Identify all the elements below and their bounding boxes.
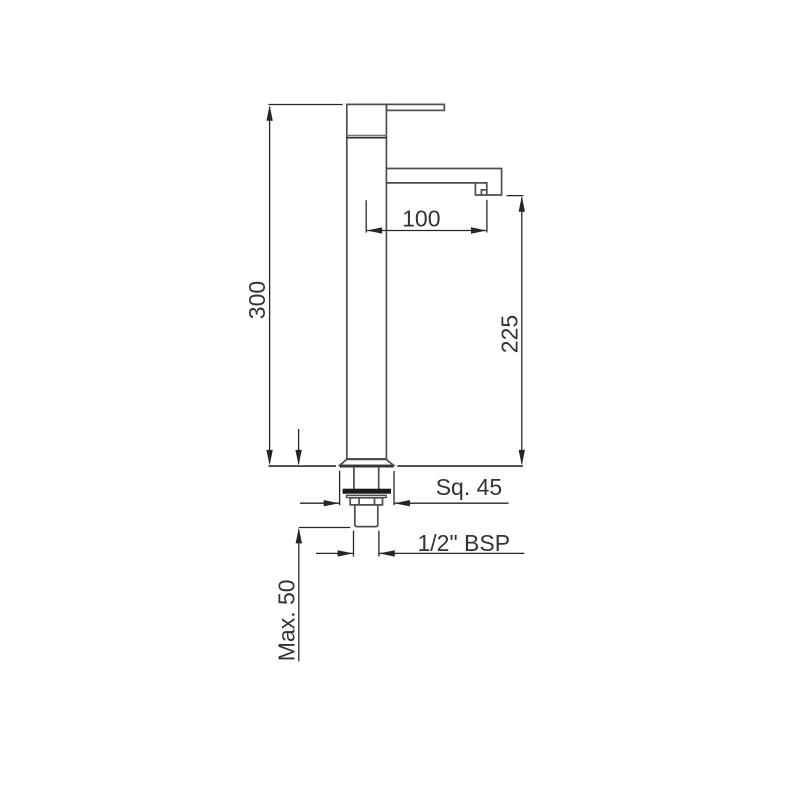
svg-text:225: 225 bbox=[497, 315, 523, 353]
svg-text:100: 100 bbox=[402, 206, 440, 232]
svg-text:Max. 50: Max. 50 bbox=[274, 579, 300, 661]
svg-text:1/2" BSP: 1/2" BSP bbox=[418, 530, 511, 556]
svg-text:Sq. 45: Sq. 45 bbox=[436, 474, 503, 500]
svg-text:300: 300 bbox=[244, 281, 270, 319]
